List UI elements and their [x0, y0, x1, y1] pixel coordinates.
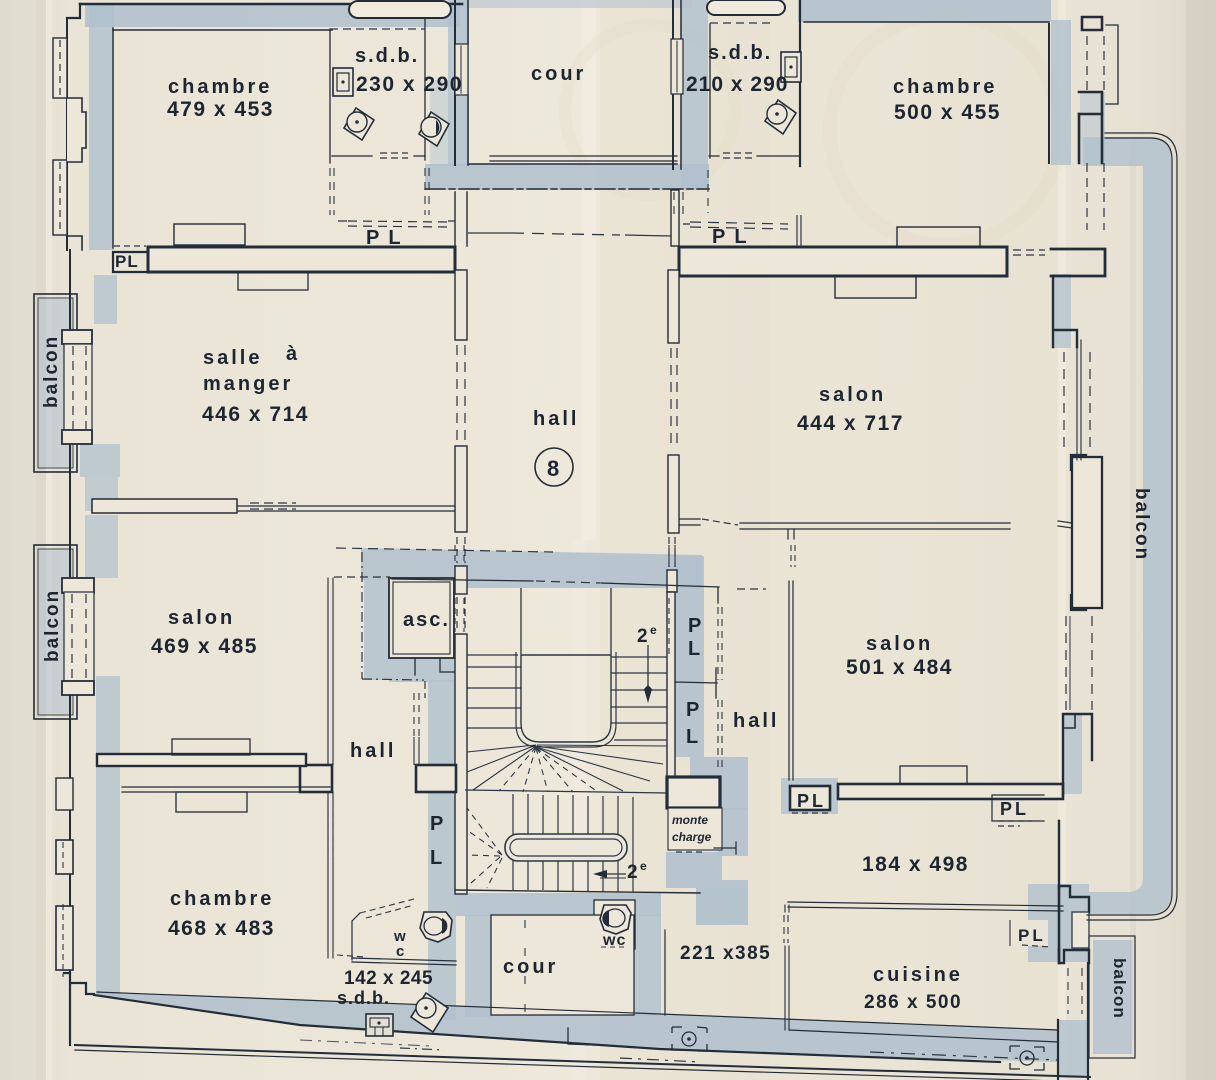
- svg-text:balcon: balcon: [41, 335, 62, 408]
- svg-text:PL: PL: [366, 227, 410, 249]
- svg-text:cuisine: cuisine: [873, 964, 963, 986]
- svg-text:142 x 245: 142 x 245: [344, 968, 433, 989]
- svg-text:chambre: chambre: [170, 888, 274, 910]
- svg-text:221 x385: 221 x385: [680, 943, 771, 964]
- svg-text:479 x 453: 479 x 453: [167, 98, 274, 121]
- svg-text:c: c: [396, 943, 405, 960]
- svg-text:L: L: [686, 726, 701, 748]
- svg-text:balcon: balcon: [42, 589, 63, 662]
- svg-text:L: L: [688, 638, 703, 660]
- svg-text:2: 2: [627, 862, 641, 883]
- svg-text:286 x 500: 286 x 500: [864, 992, 962, 1013]
- svg-text:469 x 485: 469 x 485: [151, 635, 258, 658]
- svg-text:184 x 498: 184 x 498: [862, 853, 969, 876]
- svg-text:manger: manger: [203, 373, 293, 395]
- svg-text:8: 8: [547, 456, 562, 481]
- svg-text:PL: PL: [1000, 799, 1029, 819]
- svg-text:PL: PL: [115, 252, 139, 271]
- svg-text:501 x 484: 501 x 484: [846, 656, 953, 679]
- svg-text:s.d.b.: s.d.b.: [355, 45, 419, 67]
- svg-text:444 x 717: 444 x 717: [797, 412, 904, 435]
- svg-text:salon: salon: [168, 607, 235, 629]
- svg-text:hall: hall: [350, 740, 396, 762]
- svg-text:e: e: [650, 623, 658, 637]
- svg-text:L: L: [430, 847, 445, 869]
- svg-text:446 x 714: 446 x 714: [202, 403, 309, 426]
- svg-text:à: à: [286, 343, 300, 365]
- svg-text:salon: salon: [866, 633, 933, 655]
- svg-text:P: P: [686, 699, 702, 721]
- svg-text:P: P: [430, 813, 446, 835]
- svg-text:PL: PL: [797, 791, 826, 811]
- svg-text:e: e: [640, 859, 648, 873]
- svg-text:PL: PL: [1018, 926, 1046, 945]
- svg-text:P: P: [688, 615, 704, 637]
- svg-text:cour: cour: [503, 956, 558, 978]
- svg-text:230 x 290: 230 x 290: [356, 73, 463, 96]
- svg-text:468 x 483: 468 x 483: [168, 917, 275, 940]
- svg-text:balcon: balcon: [1110, 958, 1129, 1019]
- svg-text:210 x 290: 210 x 290: [686, 73, 788, 96]
- svg-text:PL: PL: [712, 226, 756, 248]
- svg-text:chambre: chambre: [893, 76, 997, 98]
- svg-text:asc.: asc.: [403, 609, 450, 631]
- svg-text:s.d.b.: s.d.b.: [337, 988, 390, 1008]
- svg-text:2: 2: [637, 626, 651, 647]
- svg-text:chambre: chambre: [168, 76, 272, 98]
- svg-text:s.d.b.: s.d.b.: [708, 42, 772, 64]
- svg-text:hall: hall: [733, 710, 779, 732]
- svg-text:cour: cour: [531, 63, 586, 85]
- svg-text:hall: hall: [533, 408, 579, 430]
- svg-text:charge: charge: [672, 830, 712, 844]
- svg-text:balcon: balcon: [1131, 488, 1152, 561]
- svg-text:salle: salle: [203, 347, 262, 369]
- svg-text:500 x 455: 500 x 455: [894, 101, 1001, 124]
- svg-text:monte: monte: [672, 813, 708, 827]
- svg-text:salon: salon: [819, 384, 886, 406]
- svg-text:wc: wc: [602, 932, 626, 949]
